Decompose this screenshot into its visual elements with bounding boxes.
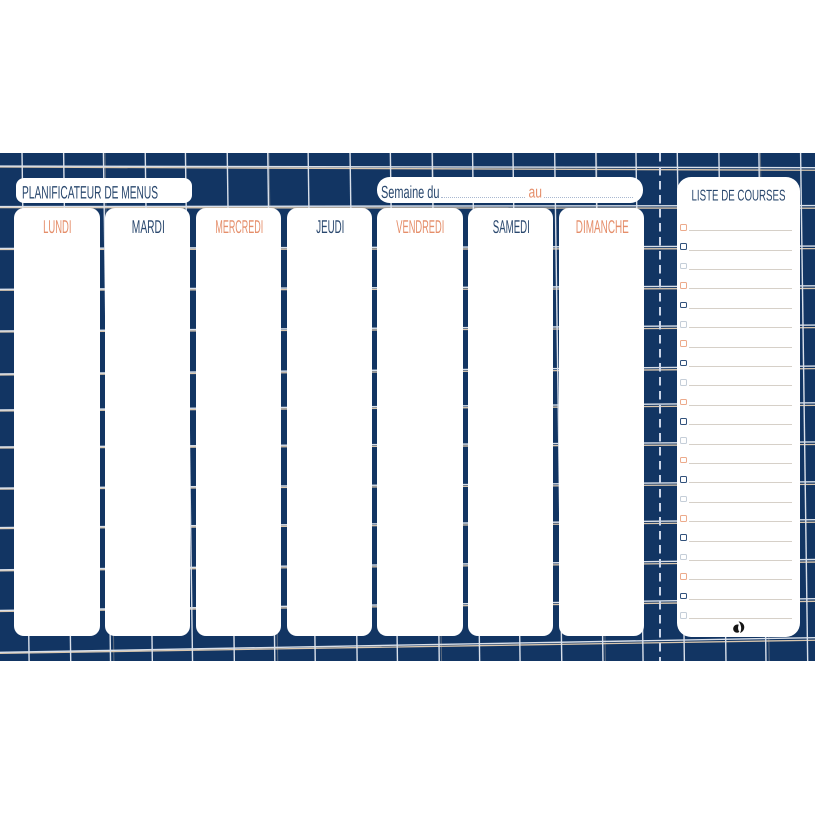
svg-text:MERCREDI: MERCREDI: [215, 216, 263, 237]
svg-text:SAMEDI: SAMEDI: [493, 216, 530, 237]
svg-text:JEUDI: JEUDI: [316, 216, 344, 237]
svg-text:PLANIFICATEUR DE MENUS: PLANIFICATEUR DE MENUS: [22, 182, 158, 202]
svg-text:Semaine du: Semaine du: [381, 182, 440, 202]
svg-text:DIMANCHE: DIMANCHE: [576, 216, 629, 237]
svg-text:VENDREDI: VENDREDI: [397, 216, 445, 237]
svg-text:LISTE DE COURSES: LISTE DE COURSES: [692, 187, 786, 204]
svg-text:au: au: [529, 183, 543, 201]
svg-text:LUNDI: LUNDI: [43, 216, 71, 237]
svg-text:MARDI: MARDI: [132, 216, 165, 237]
